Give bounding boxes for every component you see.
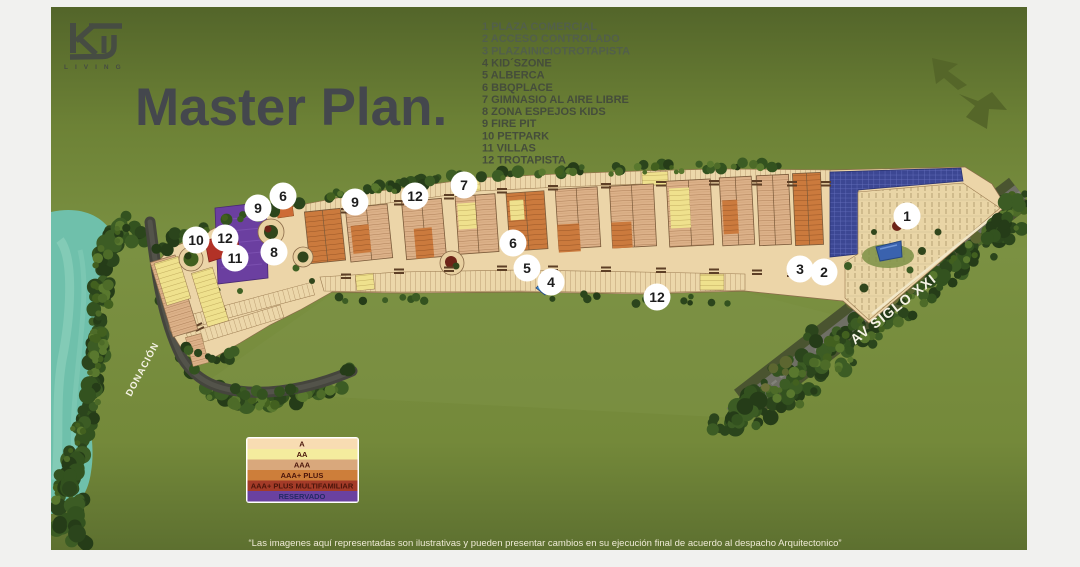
- svg-text:11 VILLAS: 11 VILLAS: [482, 143, 536, 155]
- svg-text:AAA+ PLUS: AAA+ PLUS: [281, 471, 324, 480]
- svg-text:7 GIMNASIO AL AIRE LIBRE: 7 GIMNASIO AL AIRE LIBRE: [482, 94, 629, 106]
- svg-text:4 KID´SZONE: 4 KID´SZONE: [482, 58, 552, 70]
- svg-text:11: 11: [228, 250, 243, 266]
- svg-text:4: 4: [547, 274, 555, 290]
- svg-text:9: 9: [254, 200, 262, 216]
- svg-text:10 PETPARK: 10 PETPARK: [482, 130, 549, 142]
- svg-text:AAA: AAA: [294, 461, 311, 470]
- svg-text:5: 5: [523, 260, 531, 276]
- svg-text:5 ALBERCA: 5 ALBERCA: [482, 70, 545, 82]
- svg-text:AAA+ PLUS MULTIFAMILIAR: AAA+ PLUS MULTIFAMILIAR: [251, 482, 354, 491]
- svg-text:8: 8: [270, 244, 278, 260]
- svg-text:10: 10: [188, 232, 204, 248]
- svg-text:AA: AA: [297, 450, 308, 459]
- svg-text:12: 12: [217, 230, 233, 246]
- svg-text:2: 2: [820, 264, 828, 280]
- svg-text:12 TROTAPISTA: 12 TROTAPISTA: [482, 155, 566, 167]
- svg-text:12: 12: [649, 289, 665, 305]
- svg-text:7: 7: [460, 177, 468, 193]
- svg-text:1: 1: [903, 208, 911, 224]
- svg-text:3: 3: [796, 261, 804, 277]
- svg-text:9: 9: [351, 194, 359, 210]
- svg-text:Master Plan.: Master Plan.: [135, 78, 447, 137]
- svg-text:6 BBQPLACE: 6 BBQPLACE: [482, 82, 553, 94]
- svg-text:1 PLAZA COMERCIAL: 1 PLAZA COMERCIAL: [482, 21, 597, 33]
- svg-text:A: A: [299, 440, 305, 449]
- svg-text:6: 6: [279, 188, 287, 204]
- svg-text:12: 12: [407, 188, 423, 204]
- svg-text:2 ACCESO CONTROLADO: 2 ACCESO CONTROLADO: [482, 33, 620, 45]
- svg-text:9 FIRE PIT: 9 FIRE PIT: [482, 118, 537, 130]
- svg-text:6: 6: [509, 235, 517, 251]
- svg-text:8 ZONA ESPEJOS KIDS: 8 ZONA ESPEJOS KIDS: [482, 106, 606, 118]
- svg-text:LIVING: LIVING: [64, 64, 128, 71]
- svg-text:RESERVADO: RESERVADO: [279, 492, 326, 501]
- svg-text:“Las imagenes aquí representad: “Las imagenes aquí representadas son ilu…: [248, 538, 841, 549]
- svg-text:3 PLAZAINICIOTROTAPISTA: 3 PLAZAINICIOTROTAPISTA: [482, 45, 630, 57]
